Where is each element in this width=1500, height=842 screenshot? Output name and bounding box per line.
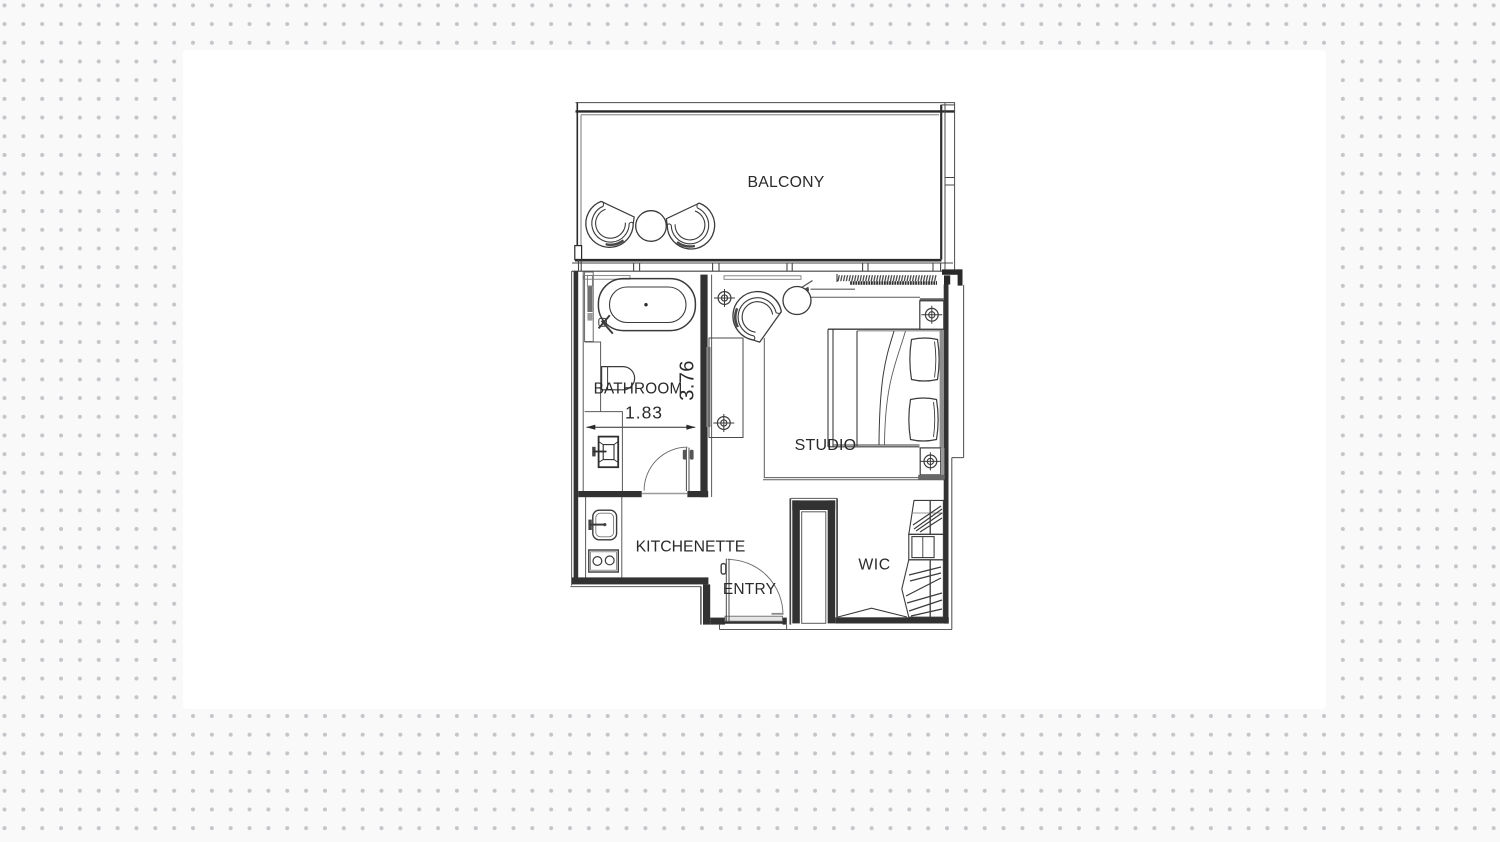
svg-text:ENTRY: ENTRY xyxy=(723,581,776,598)
svg-text:WIC: WIC xyxy=(858,557,890,574)
svg-text:KITCHENETTE: KITCHENETTE xyxy=(636,539,746,556)
svg-text:BALCONY: BALCONY xyxy=(748,174,825,191)
svg-text:3.76: 3.76 xyxy=(677,360,699,401)
svg-text:1.83: 1.83 xyxy=(625,403,663,423)
svg-text:STUDIO: STUDIO xyxy=(795,437,857,454)
svg-text:BATHROOM: BATHROOM xyxy=(594,381,683,398)
